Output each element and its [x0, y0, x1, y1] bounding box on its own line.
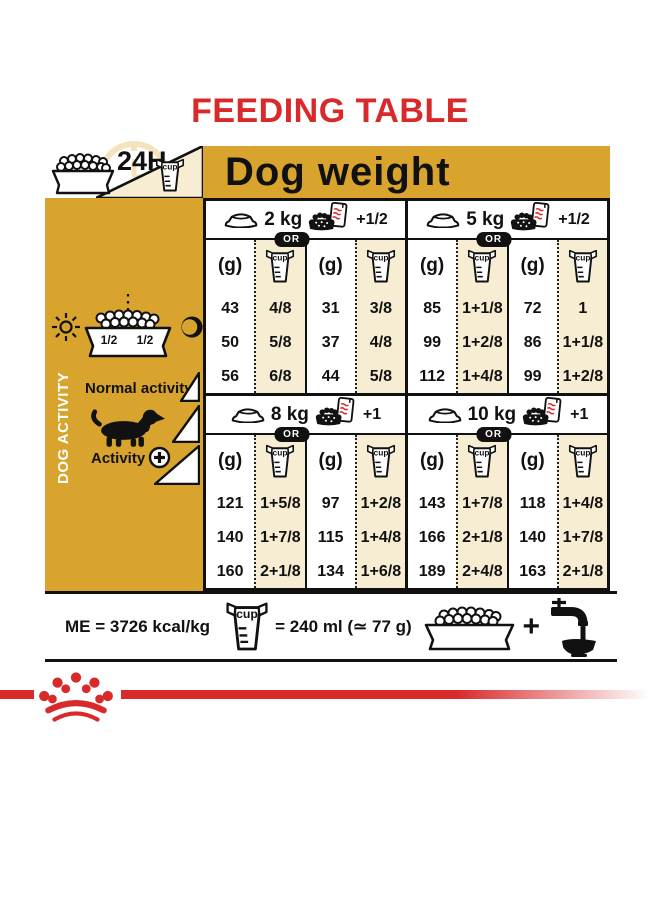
cup-column: cup 1+4/8 1+7/8 2+1/8	[557, 435, 607, 588]
moon-icon	[179, 312, 205, 342]
grams-column: (g) 31 37 44	[305, 240, 355, 393]
empty-bowl-icon	[223, 211, 259, 228]
activity-level-3-icon	[154, 445, 200, 485]
dog-activity-sidebar: 1/2 1/2 DOG ACTIVITY Normal activity Act…	[45, 198, 203, 591]
table-cell: 1+4/8	[462, 360, 502, 394]
weight-section-8kg: 8 kg +1 OR (g) 121 140 160 cup	[206, 396, 405, 588]
extra-portion-label: +1	[570, 406, 588, 424]
or-badge: OR	[476, 427, 511, 442]
empty-bowl-icon	[230, 406, 266, 423]
svg-text:cup: cup	[575, 447, 590, 457]
table-cell: 50	[221, 326, 239, 360]
grams-column: (g) 118 140 163	[507, 435, 557, 588]
cup-column: cup 1+7/8 2+1/8 2+4/8	[456, 435, 506, 588]
grams-header: (g)	[318, 435, 342, 487]
activity-level-1-icon	[180, 372, 200, 402]
grams-column: (g) 72 86 99	[507, 240, 557, 393]
table-cell: 1	[578, 292, 587, 326]
or-badge: OR	[274, 427, 309, 442]
weight-section-5kg: 5 kg +1/2 OR (g) 85 99 112 cup	[405, 201, 607, 393]
table-cell: 1+7/8	[462, 487, 502, 521]
table-cell: 140	[217, 521, 244, 555]
cup-icon: cup	[366, 248, 396, 285]
table-cell: 189	[419, 555, 446, 589]
weight-label: 2 kg	[264, 209, 302, 231]
section-header: 2 kg +1/2 OR	[206, 201, 405, 240]
grams-header: (g)	[318, 240, 342, 292]
dachshund-icon	[87, 401, 165, 449]
table-cell: 163	[519, 555, 546, 589]
table-cell: 56	[221, 360, 239, 394]
bowl-pouch-icon	[307, 202, 351, 234]
table-cell: 1+6/8	[361, 555, 401, 589]
svg-text:cup: cup	[575, 252, 590, 262]
grams-column: (g) 43 50 56	[206, 240, 254, 393]
weight-section-2kg: 2 kg +1/2 OR (g) 43 50 56 cup	[206, 201, 405, 393]
half-left-label: 1/2	[101, 333, 118, 347]
weight-section-10kg: 10 kg +1 OR (g) 143 166 189 cup	[405, 396, 607, 588]
table-cell: 5/8	[269, 326, 291, 360]
table-cell: 43	[221, 292, 239, 326]
cup-icon: cup	[568, 248, 598, 285]
grams-column: (g) 143 166 189	[408, 435, 456, 588]
svg-text:cup: cup	[236, 606, 258, 620]
or-badge: OR	[476, 232, 511, 247]
table-block-top: 2 kg +1/2 OR (g) 43 50 56 cup	[206, 201, 607, 393]
svg-text:cup: cup	[475, 252, 490, 262]
table-block-bottom: 8 kg +1 OR (g) 121 140 160 cup	[206, 393, 607, 588]
table-cell: 85	[423, 292, 441, 326]
table-cell: 160	[217, 555, 244, 589]
legend-strip: ME = 3726 kcal/kg cup = 240 ml (≃ 77 g) …	[45, 591, 617, 662]
water-tap-icon	[545, 597, 601, 657]
table-cell: 72	[524, 292, 542, 326]
grams-column: (g) 85 99 112	[408, 240, 456, 393]
activity-level-2-icon	[172, 405, 200, 443]
svg-text:cup: cup	[373, 447, 388, 457]
table-cell: 2+1/8	[462, 521, 502, 555]
cup-equivalence-label: = 240 ml (≃ 77 g)	[275, 617, 412, 637]
measuring-cup-icon: cup	[155, 157, 185, 194]
table-cell: 2+1/8	[260, 555, 300, 589]
table-cell: 6/8	[269, 360, 291, 394]
table-cell: 99	[423, 326, 441, 360]
table-cell: 121	[217, 487, 244, 521]
half-right-label: 1/2	[137, 333, 154, 347]
table-cell: 2+1/8	[563, 555, 603, 589]
table-cell: 4/8	[370, 326, 392, 360]
plus-label: +	[522, 610, 540, 644]
grams-header: (g)	[420, 240, 444, 292]
table-cell: 1+1/8	[462, 292, 502, 326]
table-cell: 37	[322, 326, 340, 360]
table-cell: 86	[524, 326, 542, 360]
extra-portion-label: +1	[363, 406, 381, 424]
dog-activity-vertical-label: DOG ACTIVITY	[55, 364, 75, 484]
cup-icon: cup	[568, 443, 598, 480]
table-cell: 1+2/8	[361, 487, 401, 521]
me-kcal-label: ME = 3726 kcal/kg	[65, 617, 210, 637]
weight-label: 8 kg	[271, 404, 309, 426]
empty-bowl-icon	[427, 406, 463, 423]
section-header: 8 kg +1 OR	[206, 396, 405, 435]
grams-header: (g)	[520, 240, 544, 292]
cup-column: cup 1+5/8 1+7/8 2+1/8	[254, 435, 304, 588]
kibble-bowl-icon	[422, 602, 517, 652]
svg-text:cup: cup	[163, 161, 178, 171]
page-title: FEEDING TABLE	[0, 92, 660, 131]
svg-text:cup: cup	[273, 447, 288, 457]
red-rule-left	[0, 690, 34, 699]
bowl-pouch-icon	[314, 397, 358, 429]
table-cell: 97	[322, 487, 340, 521]
table-cell: 118	[520, 487, 546, 521]
cup-column: cup 4/8 5/8 6/8	[254, 240, 304, 393]
cup-column: cup 1+1/8 1+2/8 1+4/8	[456, 240, 506, 393]
table-cell: 1+4/8	[361, 521, 401, 555]
table-cell: 3/8	[370, 292, 392, 326]
empty-bowl-icon	[425, 211, 461, 228]
table-cell: 143	[419, 487, 446, 521]
table-cell: 1+7/8	[260, 521, 300, 555]
feeding-table: 2 kg +1/2 OR (g) 43 50 56 cup	[203, 198, 610, 591]
table-cell: 44	[322, 360, 340, 394]
cup-column: cup 1+2/8 1+4/8 1+6/8	[355, 435, 405, 588]
grams-header: (g)	[218, 240, 242, 292]
grams-header: (g)	[218, 435, 242, 487]
table-cell: 1+7/8	[563, 521, 603, 555]
grams-column: (g) 121 140 160	[206, 435, 254, 588]
activity-plus-label: Activity	[91, 450, 145, 467]
or-badge: OR	[274, 232, 309, 247]
cup-icon: cup	[265, 248, 295, 285]
cup-column: cup 3/8 4/8 5/8	[355, 240, 405, 393]
grams-header: (g)	[420, 435, 444, 487]
grams-header: (g)	[520, 435, 544, 487]
table-cell: 115	[318, 521, 344, 555]
table-cell: 166	[419, 521, 446, 555]
svg-text:cup: cup	[273, 252, 288, 262]
split-meal-bowl-icon: 1/2 1/2	[81, 294, 175, 362]
table-cell: 112	[419, 360, 445, 394]
cup-icon: cup	[467, 443, 497, 480]
cup-icon: cup	[467, 248, 497, 285]
dog-weight-band: Dog weight	[203, 146, 610, 198]
table-cell: 140	[519, 521, 546, 555]
cup-column: cup 1 1+1/8 1+2/8	[557, 240, 607, 393]
measuring-cup-icon: cup	[225, 600, 269, 654]
section-header: 5 kg +1/2 OR	[408, 201, 607, 240]
bowl-pouch-icon	[509, 202, 553, 234]
crown-logo	[36, 671, 116, 725]
table-cell: 4/8	[269, 292, 291, 326]
extra-portion-label: +1/2	[356, 211, 388, 229]
cup-icon: cup	[366, 443, 396, 480]
table-cell: 1+5/8	[260, 487, 300, 521]
grams-column: (g) 97 115 134	[305, 435, 355, 588]
normal-activity-label: Normal activity	[85, 380, 193, 397]
svg-text:cup: cup	[475, 447, 490, 457]
weight-label: 10 kg	[468, 404, 517, 426]
table-cell: 134	[317, 555, 344, 589]
sun-icon	[51, 312, 81, 342]
table-cell: 31	[322, 292, 340, 326]
table-cell: 2+4/8	[462, 555, 502, 589]
weight-label: 5 kg	[466, 209, 504, 231]
extra-portion-label: +1/2	[558, 211, 590, 229]
kibble-bowl-icon	[50, 147, 116, 197]
table-cell: 1+1/8	[563, 326, 603, 360]
table-cell: 99	[524, 360, 542, 394]
cup-icon: cup	[265, 443, 295, 480]
section-header: 10 kg +1 OR	[408, 396, 607, 435]
table-cell: 1+4/8	[563, 487, 603, 521]
svg-text:cup: cup	[373, 252, 388, 262]
table-cell: 1+2/8	[462, 326, 502, 360]
table-cell: 1+2/8	[563, 360, 603, 394]
table-cell: 5/8	[370, 360, 392, 394]
red-rule-right	[121, 690, 660, 699]
bowl-pouch-icon	[521, 397, 565, 429]
